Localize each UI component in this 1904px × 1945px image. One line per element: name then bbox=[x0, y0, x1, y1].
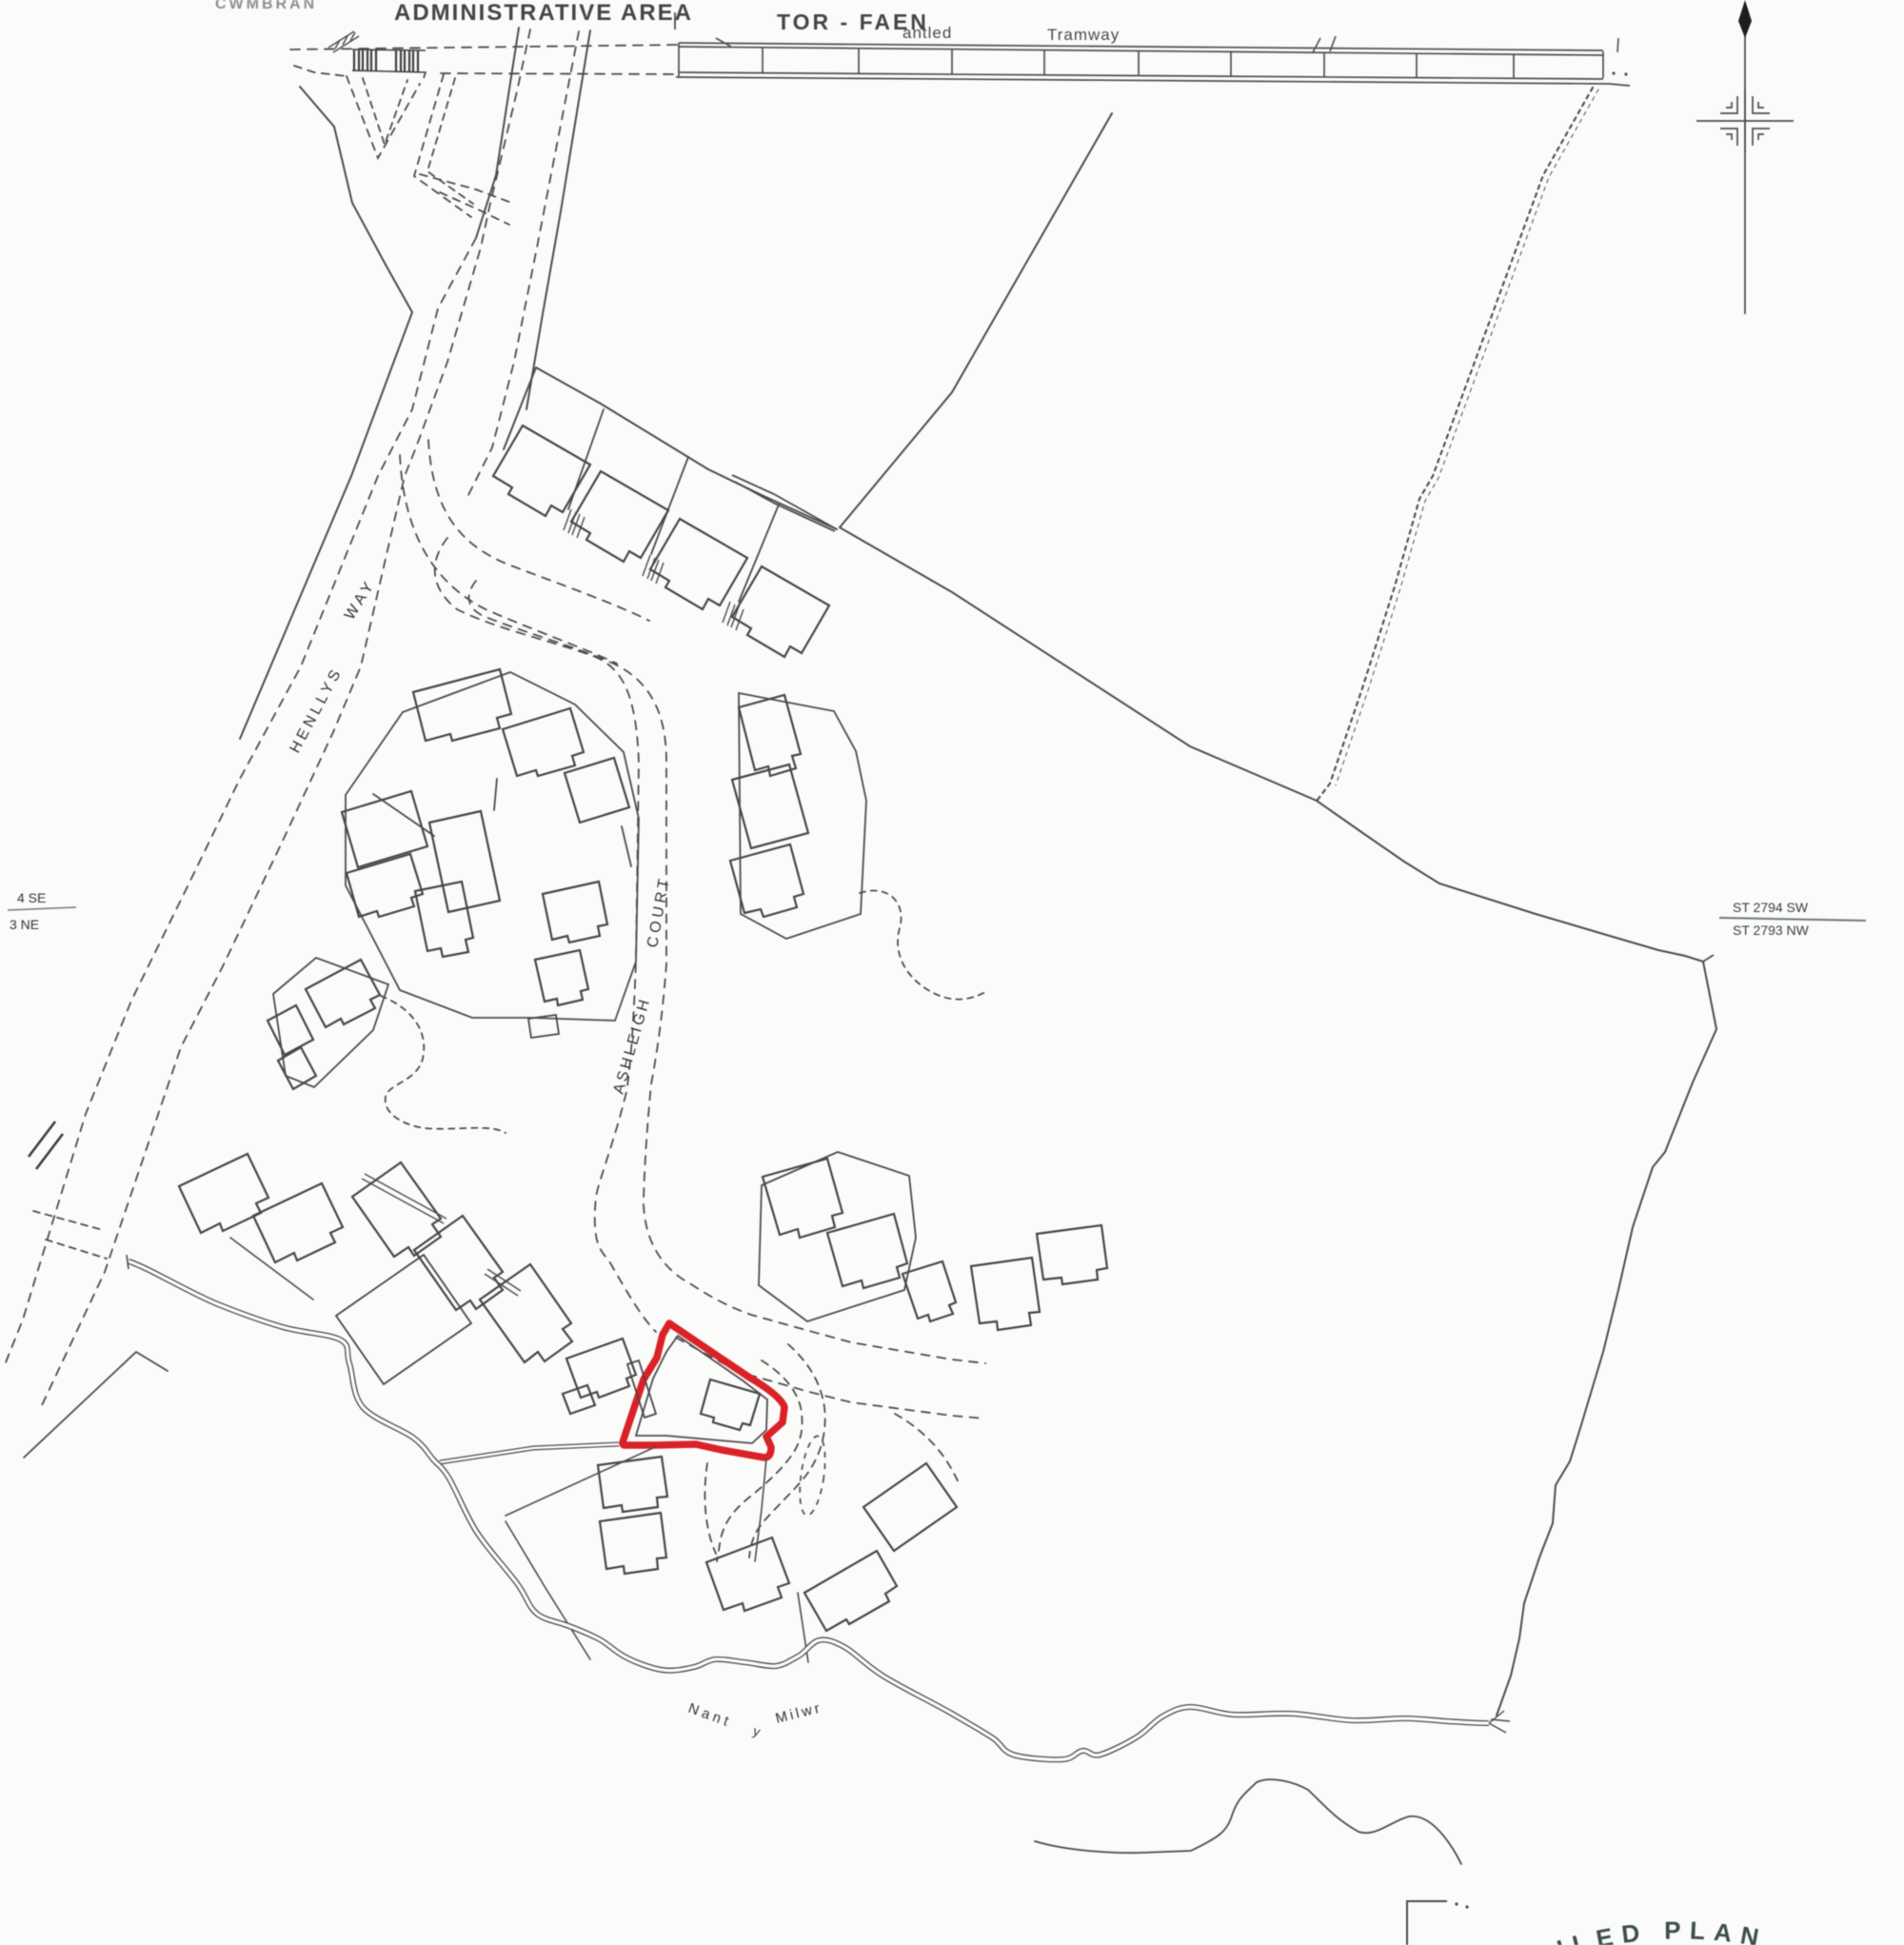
svg-text:4 SE: 4 SE bbox=[17, 890, 46, 905]
svg-text:CWMBRAN: CWMBRAN bbox=[215, 0, 317, 12]
svg-text:ST 2794 SW: ST 2794 SW bbox=[1733, 900, 1809, 915]
svg-text:ADMINISTRATIVE AREA: ADMINISTRATIVE AREA bbox=[394, 0, 693, 26]
svg-text:ST 2793 NW: ST 2793 NW bbox=[1733, 923, 1810, 938]
svg-text:antled: antled bbox=[902, 24, 952, 42]
svg-text:3 NE: 3 NE bbox=[10, 917, 39, 932]
svg-text:Tramway: Tramway bbox=[1047, 26, 1120, 44]
